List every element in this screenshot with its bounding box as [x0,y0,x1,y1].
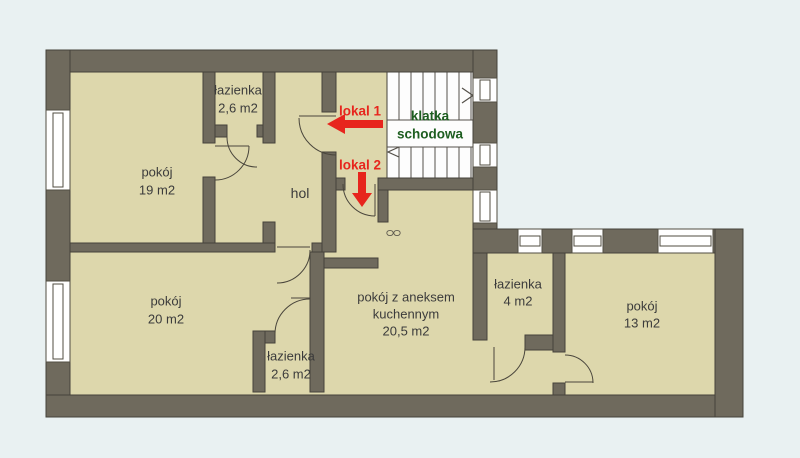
label-lazienka4-area: 4 m2 [504,294,533,309]
wall-hol-right-lower [322,152,336,252]
wall-lazienka4-bottom [525,335,557,350]
wall-stair-right-2 [473,100,497,143]
label-pokoj19-name: pokój [141,165,172,180]
wall-stair-right-3 [473,167,497,190]
floor-plan-page: pokój 19 m2 łazienka 2,6 m2 hol pokój 20… [0,0,800,458]
wall-right [715,229,743,417]
wall-kitchen-annex-stub [324,258,378,268]
window-top-2 [572,229,603,253]
window-left-1 [46,110,70,190]
window-left-2 [46,281,70,362]
floor-plan-canvas: pokój 19 m2 łazienka 2,6 m2 hol pokój 20… [0,0,800,458]
label-pokoj13-name: pokój [626,299,657,314]
window-top-1 [518,229,542,253]
wall-hol-right-upper [322,72,336,112]
window-stairs-1 [473,78,497,102]
wall-pokoj13-left [553,253,565,352]
wall-pokoj19-right-lower [203,177,215,252]
wall-bottom [46,395,743,417]
wall-landing-stub-down [378,190,388,222]
label-pokoj19-area: 19 m2 [139,183,175,198]
label-lokal2: lokal 2 [339,158,381,173]
wall-lazienka-top-bottom-1 [215,125,227,137]
label-klatka: klatka [411,109,450,124]
label-lazienka-bottom-area: 2,6 m2 [271,367,311,382]
wall-lazienka-top-right [263,72,275,143]
label-lazienka-top-name: łazienka [214,83,262,98]
wall-pokoj13-left-stub [553,383,565,395]
wall-stair-right-1 [473,50,497,78]
wall-right-block-top-1 [473,229,518,253]
wall-divider-pokoj19-20 [70,243,275,252]
window-stairs-3 [473,190,497,223]
wall-aneks-left [310,252,324,392]
label-aneks-line2: kuchennym [373,307,439,322]
label-lokal1: lokal 1 [339,104,382,119]
interior-right-block [473,253,715,395]
label-aneks-area: 20,5 m2 [383,324,430,339]
wall-under-stairs [378,178,473,190]
label-pokoj20-area: 20 m2 [148,312,184,327]
label-lazienka-bottom-name: łazienka [267,349,315,364]
label-aneks-line1: pokój z aneksem [357,290,455,305]
label-pokoj13-area: 13 m2 [624,316,660,331]
label-lazienka-top-area: 2,6 m2 [218,101,258,116]
wall-lazienka-bottom-left [253,331,265,392]
window-top-3 [658,229,713,253]
wall-right-block-top-2 [542,229,572,253]
label-pokoj20-name: pokój [150,294,181,309]
label-schodowa: schodowa [397,127,464,142]
label-lazienka4-name: łazienka [494,277,542,292]
wall-lazienka-top-bottom-2 [257,125,263,137]
wall-right-block-top-3 [603,229,658,253]
wall-top [46,50,497,72]
label-hol: hol [291,185,310,201]
window-stairs-2 [473,143,497,167]
wall-lazienka4-left [473,253,487,340]
